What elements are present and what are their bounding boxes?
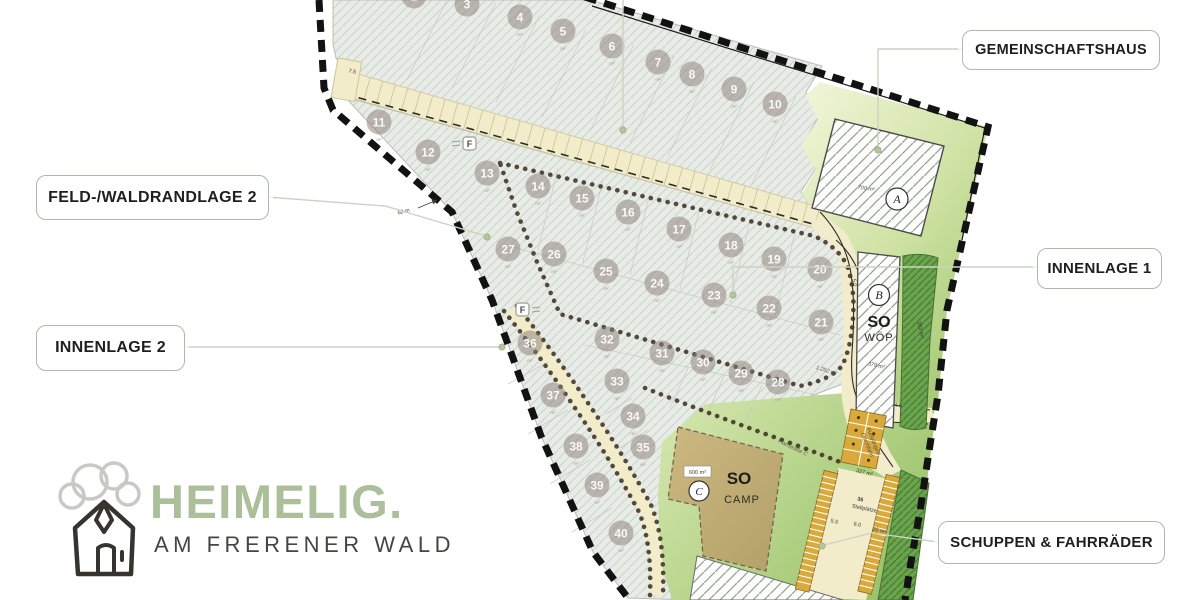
svg-text:m²: m² (604, 354, 610, 359)
svg-text:m²: m² (550, 410, 556, 415)
svg-text:19: 19 (767, 253, 781, 267)
svg-text:37: 37 (546, 389, 560, 403)
callout-innenlage-2: INNENLAGE 2 (36, 325, 185, 371)
svg-text:5: 5 (560, 25, 567, 39)
svg-text:22: 22 (762, 302, 776, 316)
svg-text:WÖP: WÖP (864, 332, 893, 344)
svg-text:6: 6 (609, 40, 616, 54)
svg-text:36: 36 (523, 337, 537, 351)
callout-gemeinschaftshaus: GEMEINSCHAFTSHAUS (962, 30, 1160, 70)
svg-text:27: 27 (501, 243, 515, 257)
svg-text:4.0: 4.0 (894, 403, 902, 410)
svg-text:A: A (892, 192, 901, 206)
svg-text:33: 33 (610, 375, 624, 389)
svg-text:m²: m² (771, 274, 777, 279)
svg-text:39: 39 (590, 479, 604, 493)
svg-text:21: 21 (814, 316, 828, 330)
callout-label: INNENLAGE 2 (55, 339, 166, 357)
svg-text:12: 12 (421, 146, 435, 160)
svg-text:m²: m² (614, 396, 620, 401)
svg-text:30: 30 (696, 356, 710, 370)
svg-text:29: 29 (734, 367, 748, 381)
svg-text:m²: m² (772, 119, 778, 124)
svg-text:9: 9 (731, 83, 738, 97)
callout-feld-waldrandlage-2: FELD-/WALDRANDLAGE 2 (36, 175, 269, 220)
callout-label: GEMEINSCHAFTSHAUS (975, 42, 1147, 58)
svg-text:23: 23 (707, 289, 721, 303)
svg-text:m²: m² (618, 548, 624, 553)
svg-text:m²: m² (817, 284, 823, 289)
svg-text:31: 31 (655, 347, 669, 361)
callout-innenlage-1: INNENLAGE 1 (1037, 248, 1162, 289)
svg-text:SO: SO (727, 469, 752, 488)
svg-text:m²: m² (535, 201, 541, 206)
svg-text:14: 14 (531, 180, 545, 194)
svg-text:m²: m² (579, 213, 585, 218)
svg-text:8: 8 (689, 68, 696, 82)
svg-text:m²: m² (766, 323, 772, 328)
svg-text:m²: m² (376, 137, 382, 142)
svg-text:m²: m² (594, 500, 600, 505)
svg-text:m²: m² (775, 397, 781, 402)
svg-text:15: 15 (575, 192, 589, 206)
svg-text:2: 2 (411, 0, 418, 4)
svg-text:m²: m² (603, 286, 609, 291)
svg-text:10: 10 (768, 98, 782, 112)
svg-text:m²: m² (731, 104, 737, 109)
callout-label: SCHUPPEN & FAHRRÄDER (950, 534, 1153, 551)
brand-logo: HEIMELIG. AM FRERENER WALD (52, 446, 482, 591)
svg-text:m²: m² (654, 298, 660, 303)
svg-text:CAMP: CAMP (724, 494, 760, 506)
svg-text:m²: m² (818, 337, 824, 342)
svg-text:F: F (520, 305, 526, 315)
svg-text:F: F (467, 139, 473, 149)
callout-label: INNENLAGE 1 (1047, 260, 1151, 277)
svg-text:m²: m² (505, 264, 511, 269)
callout-schuppen-fahrraeder: SCHUPPEN & FAHRRÄDER (938, 521, 1165, 564)
svg-text:m²: m² (711, 310, 717, 315)
svg-text:m²: m² (640, 462, 646, 467)
svg-text:26: 26 (547, 248, 561, 262)
svg-text:35: 35 (636, 441, 650, 455)
svg-text:m²: m² (700, 377, 706, 382)
svg-text:34: 34 (626, 410, 640, 424)
svg-text:m²: m² (630, 431, 636, 436)
svg-text:C: C (695, 486, 703, 498)
svg-text:11: 11 (373, 116, 386, 130)
svg-text:SO: SO (867, 314, 890, 331)
svg-text:38: 38 (569, 440, 583, 454)
svg-text:7: 7 (655, 56, 662, 70)
svg-text:m²: m² (560, 46, 566, 51)
svg-text:25: 25 (599, 265, 613, 279)
svg-text:20: 20 (813, 263, 827, 277)
svg-text:m²: m² (728, 260, 734, 265)
svg-text:28: 28 (771, 376, 785, 390)
svg-text:4: 4 (517, 11, 524, 25)
svg-text:m²: m² (551, 269, 557, 274)
svg-text:m²: m² (689, 89, 695, 94)
svg-text:m²: m² (738, 388, 744, 393)
svg-text:m²: m² (484, 188, 490, 193)
svg-text:m²: m² (625, 227, 631, 232)
brand-name: HEIMELIG. (150, 474, 404, 529)
svg-text:m²: m² (425, 167, 431, 172)
brand-tagline: AM FRERENER WALD (154, 532, 455, 558)
svg-text:600 m²: 600 m² (689, 470, 706, 476)
svg-text:m²: m² (517, 32, 523, 37)
svg-text:32: 32 (600, 333, 614, 347)
svg-text:3: 3 (464, 0, 471, 12)
svg-text:36: 36 (857, 496, 864, 503)
svg-text:24: 24 (650, 277, 664, 291)
house-tree-icon (52, 452, 152, 582)
svg-text:40: 40 (614, 527, 628, 541)
svg-text:m²: m² (527, 358, 533, 363)
svg-text:m²: m² (573, 461, 579, 466)
callout-label: FELD-/WALDRANDLAGE 2 (48, 189, 257, 207)
svg-text:B: B (875, 288, 883, 302)
svg-text:17: 17 (672, 223, 686, 237)
svg-text:m²: m² (609, 61, 615, 66)
svg-text:m²: m² (655, 77, 661, 82)
svg-text:13: 13 (480, 167, 494, 181)
svg-text:m²: m² (659, 368, 665, 373)
svg-text:18: 18 (724, 239, 738, 253)
svg-text:16: 16 (621, 206, 635, 220)
svg-text:m²: m² (676, 244, 682, 249)
